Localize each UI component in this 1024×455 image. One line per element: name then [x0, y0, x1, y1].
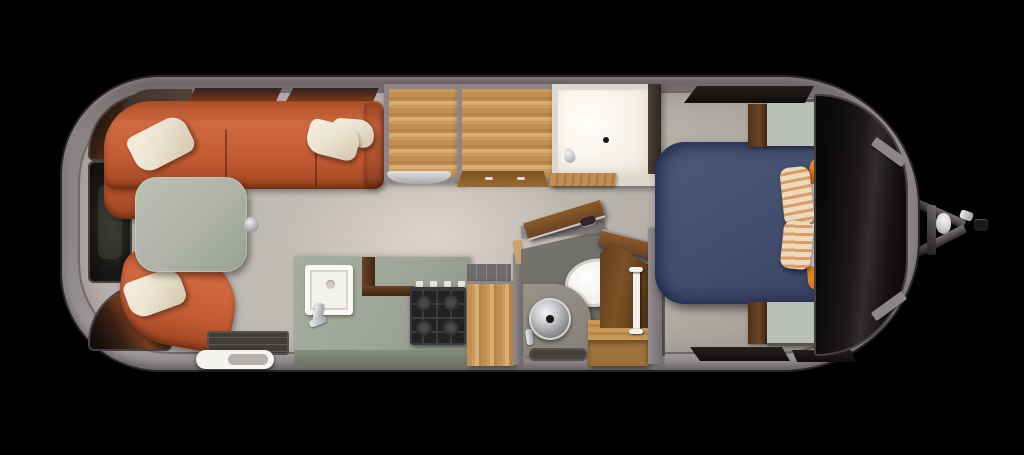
- hitch-tip: [974, 219, 988, 231]
- nightstand-rear-drawer: [748, 302, 768, 344]
- kitchen-sink: [305, 265, 353, 315]
- burner: [443, 320, 459, 336]
- bath-floor-mat: [529, 348, 587, 361]
- pillow-striped-top: [779, 166, 815, 227]
- nightstand-front-drawer: [748, 104, 768, 147]
- pedestal-table: [135, 177, 247, 272]
- sink-drain: [546, 315, 554, 323]
- cabinet-doors: [457, 171, 549, 187]
- bath-round-sink: [529, 298, 571, 340]
- floor-plan-scene: [0, 0, 1024, 455]
- burner: [443, 295, 459, 311]
- rear-wraparound-window: [814, 94, 908, 356]
- bedroom-window-top: [684, 86, 814, 103]
- sink-drain: [326, 280, 335, 289]
- towel-bar-cap: [629, 329, 643, 334]
- burner: [416, 295, 432, 311]
- bedroom-window-bottom: [690, 347, 790, 361]
- pillow-striped-bottom: [780, 220, 815, 271]
- trailer-shell: [60, 75, 920, 372]
- entry-step-tread: [228, 354, 268, 365]
- galley-bath-partition: [513, 253, 521, 365]
- shower-head: [562, 147, 577, 164]
- entry-step: [196, 350, 274, 369]
- backsplash-horizontal: [362, 286, 414, 296]
- pantry-cabinet: [467, 281, 513, 366]
- towel-bar: [633, 269, 640, 331]
- burner: [416, 320, 432, 336]
- hitch-coupler: [936, 213, 951, 234]
- table-pedestal-knob: [244, 217, 259, 232]
- step-front: [588, 340, 648, 366]
- shower-stall: [552, 84, 661, 186]
- towel-bar-cap: [629, 267, 643, 272]
- cabinet-handle: [517, 177, 525, 180]
- gas-cooktop: [410, 287, 466, 345]
- appliance-cabinet-top: [467, 264, 511, 281]
- kitchen-counter-front: [294, 350, 470, 366]
- shower-drain: [603, 137, 609, 143]
- cabinet-handle: [485, 177, 493, 180]
- refrigerator-counter: [384, 84, 464, 182]
- hitch-crossmember-outer: [927, 205, 936, 255]
- cabinet-counter: [457, 84, 559, 182]
- shower-teak-mat: [549, 173, 617, 186]
